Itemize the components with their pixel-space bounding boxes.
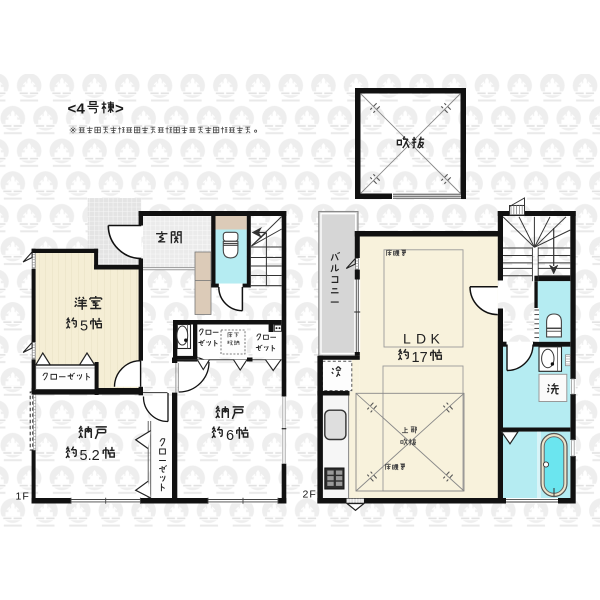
svg-text:L: L: [403, 331, 415, 347]
svg-text:17: 17: [412, 350, 428, 366]
svg-text:>: >: [115, 101, 124, 118]
svg-text:5.2: 5.2: [80, 448, 100, 464]
svg-text:<: <: [68, 101, 77, 118]
svg-text:1F: 1F: [16, 491, 30, 503]
svg-text:5: 5: [80, 319, 88, 335]
svg-text:2F: 2F: [303, 489, 317, 501]
svg-text:6: 6: [226, 428, 234, 444]
svg-text:D: D: [416, 331, 431, 347]
svg-text:4: 4: [77, 101, 86, 118]
svg-text:K: K: [431, 331, 445, 347]
